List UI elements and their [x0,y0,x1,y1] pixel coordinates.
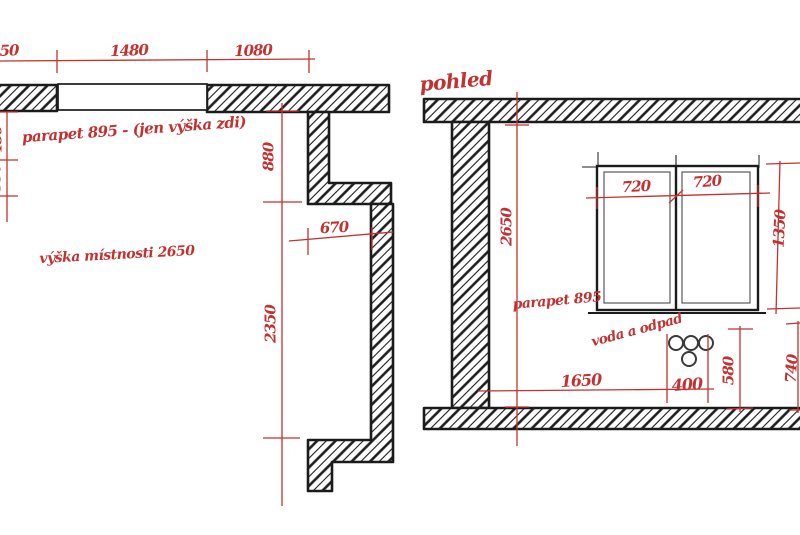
plan-dim-left-upper: 480 [0,126,5,154]
plan-wall-lower [308,204,393,491]
elevation-wall-column [452,122,489,408]
elevation-ceiling-band [424,99,800,122]
utility-outlet-circles [669,336,713,366]
plan-dim-wall-width: 1080 [234,43,272,59]
plan-wall-band-left [0,85,57,111]
plan-dim-wall-run: 2350 [264,305,279,343]
elevation-dim-utility-height: 580 [722,357,737,385]
elevation-title: pohled [419,68,494,94]
plan-window [58,84,207,110]
plan-dim-pier-height: 880 [262,143,277,171]
elevation-dim-pane-left: 720 [621,179,650,195]
elevation-dim-utility-width: 400 [671,376,702,394]
architectural-sketch: 50 1480 1080 480 350 parapet 895 - (jen … [0,0,800,535]
elevation-dim-right-partial: 740 [784,354,800,383]
elevation-dim-pane-right: 720 [692,174,721,191]
linework-layer [0,0,800,535]
plan-wall-pier [308,112,391,204]
plan-dim-window-width: 1480 [110,43,148,59]
plan-walls [0,85,393,491]
elevation-window [582,152,766,313]
plan-dim-top-left-partial: 50 [0,43,19,59]
elevation-dim-window-height: 1350 [772,210,789,248]
elevation-dim-room-height: 2650 [500,208,515,246]
plan-dim-left-lower: 350 [0,164,4,192]
elevation-floor-band [424,408,800,429]
elevation-dim-floor-run: 1650 [560,372,601,390]
plan-wall-band-right [207,85,389,112]
plan-dim-niche: 670 [319,220,348,236]
